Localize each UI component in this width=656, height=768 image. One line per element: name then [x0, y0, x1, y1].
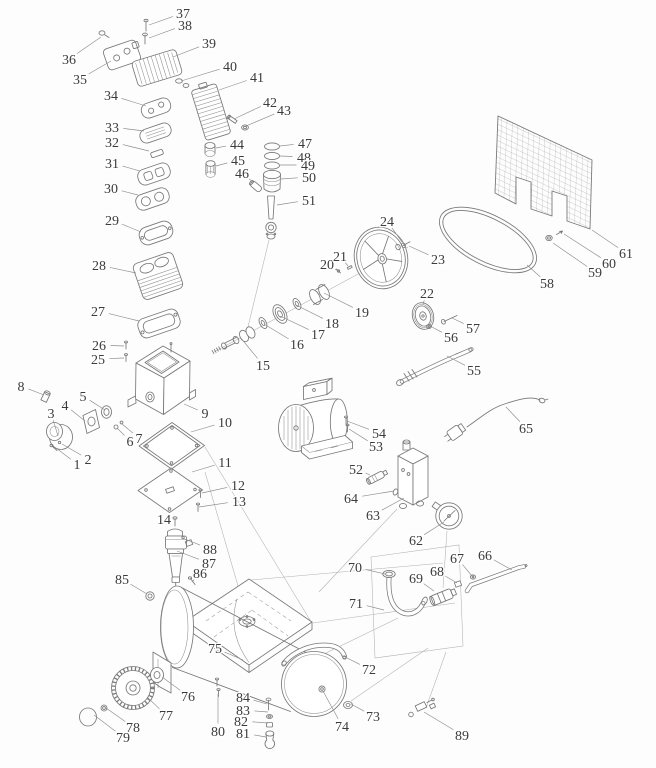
part-label-51: 51	[302, 194, 316, 209]
part-label-29: 29	[105, 214, 119, 229]
part-label-5: 5	[80, 390, 87, 405]
part-label-22: 22	[420, 287, 434, 302]
part-label-4: 4	[62, 399, 69, 414]
part-label-80: 80	[211, 725, 225, 740]
part-label-87: 87	[202, 557, 216, 572]
part-label-12: 12	[231, 479, 245, 494]
part-label-26: 26	[92, 339, 106, 354]
part-label-31: 31	[105, 157, 119, 172]
part-label-89: 89	[455, 729, 469, 744]
part-label-11: 11	[218, 456, 231, 471]
part-label-24: 24	[380, 215, 394, 230]
part-label-20: 20	[320, 258, 334, 273]
part-label-52: 52	[349, 463, 363, 478]
part-label-38: 38	[178, 19, 192, 34]
part-label-76: 76	[181, 690, 195, 705]
part-label-21: 21	[333, 250, 347, 265]
part-label-1: 1	[74, 458, 81, 473]
part-label-25: 25	[91, 353, 105, 368]
part-label-14: 14	[157, 513, 171, 528]
part-label-64: 64	[344, 492, 358, 507]
hub-cap-76	[151, 668, 164, 683]
part-label-70: 70	[348, 561, 362, 576]
part-label-3: 3	[48, 407, 55, 422]
part-label-16: 16	[290, 338, 304, 353]
part-label-2: 2	[85, 453, 92, 468]
part-label-66: 66	[478, 549, 492, 564]
part-label-79: 79	[116, 731, 130, 746]
part-label-73: 73	[366, 710, 380, 725]
part-label-67: 67	[450, 552, 464, 567]
part-label-59: 59	[588, 266, 602, 281]
part-label-53: 53	[369, 440, 383, 455]
part-label-8: 8	[18, 380, 25, 395]
part-label-60: 60	[602, 257, 616, 272]
part-label-32: 32	[105, 136, 119, 151]
part-label-44: 44	[230, 138, 244, 153]
part-label-68: 68	[430, 565, 444, 580]
part-label-56: 56	[444, 331, 458, 346]
part-label-17: 17	[311, 328, 325, 343]
exploded-diagram-svg: 1234567891011121314151617181920212223242…	[0, 0, 656, 768]
part-label-34: 34	[104, 89, 118, 104]
part-label-13: 13	[232, 495, 246, 510]
part-label-18: 18	[325, 317, 339, 332]
part-label-33: 33	[105, 121, 119, 136]
part-label-54: 54	[372, 427, 386, 442]
part-label-6: 6	[127, 435, 134, 450]
part-label-10: 10	[218, 416, 232, 431]
part-label-30: 30	[104, 182, 118, 197]
part-label-61: 61	[619, 247, 633, 262]
part-label-55: 55	[467, 364, 481, 379]
part-label-9: 9	[202, 407, 209, 422]
part-label-41: 41	[250, 71, 264, 86]
part-label-36: 36	[62, 53, 76, 68]
part-label-71: 71	[349, 597, 363, 612]
diagram-canvas: 1234567891011121314151617181920212223242…	[0, 0, 656, 768]
part-label-35: 35	[73, 73, 87, 88]
part-label-88: 88	[203, 543, 217, 558]
part-label-69: 69	[409, 572, 423, 587]
part-label-43: 43	[277, 104, 291, 119]
part-label-23: 23	[431, 253, 445, 268]
part-label-72: 72	[362, 663, 376, 678]
part-label-50: 50	[302, 171, 316, 186]
part-label-77: 77	[159, 709, 173, 724]
part-label-65: 65	[519, 422, 533, 437]
part-label-40: 40	[223, 60, 237, 75]
part-label-84: 84	[236, 691, 250, 706]
part-label-39: 39	[202, 37, 216, 52]
part-label-19: 19	[355, 306, 369, 321]
part-label-75: 75	[208, 642, 222, 657]
part-label-63: 63	[366, 509, 380, 524]
part-label-42: 42	[263, 96, 277, 111]
part-label-85: 85	[115, 573, 129, 588]
part-label-27: 27	[91, 305, 105, 320]
part-label-7: 7	[136, 432, 143, 447]
part-label-28: 28	[92, 259, 106, 274]
part-label-57: 57	[466, 322, 480, 337]
part-label-83: 83	[236, 704, 250, 719]
part-label-46: 46	[235, 167, 249, 182]
part-label-47: 47	[298, 137, 312, 152]
wheel-77	[112, 667, 155, 710]
part-label-62: 62	[409, 534, 423, 549]
part-label-15: 15	[256, 359, 270, 374]
part-label-58: 58	[540, 277, 554, 292]
part-label-74: 74	[335, 720, 349, 735]
